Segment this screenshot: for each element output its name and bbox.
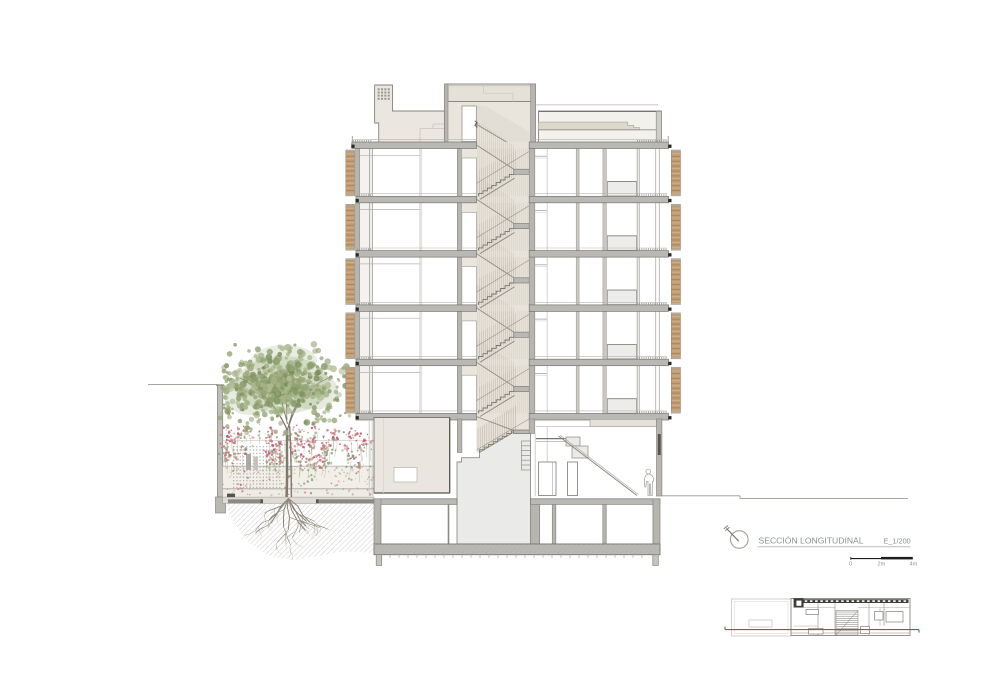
svg-text:2m: 2m	[878, 562, 886, 568]
svg-text:0: 0	[849, 562, 852, 568]
svg-text:4m: 4m	[910, 562, 918, 568]
svg-text:E_1/200: E_1/200	[884, 537, 911, 546]
svg-text:SECCIÓN LONGITUDINAL: SECCIÓN LONGITUDINAL	[759, 536, 864, 546]
